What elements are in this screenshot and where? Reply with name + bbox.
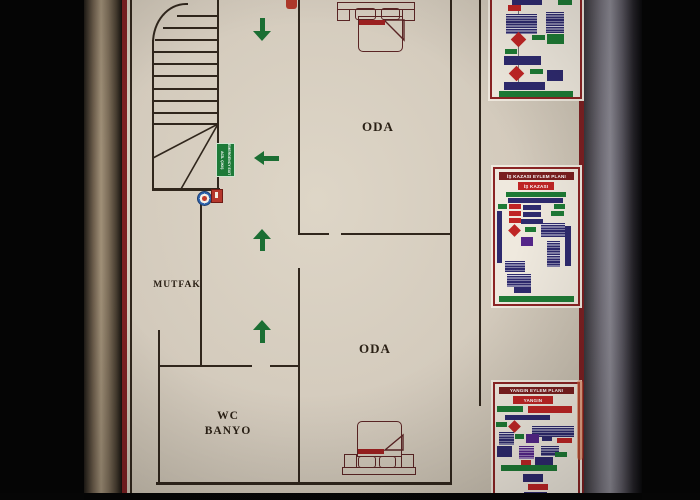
photo-of-evacuation-board: ACİL ÇIKIŞ EMERGENCY EXIT ODA ODA MUTFAK… <box>0 0 700 500</box>
flowchart-node <box>499 296 574 302</box>
flowchart-node <box>557 438 572 443</box>
bed-blanket <box>359 20 385 25</box>
poster-subtitle: YANGIN <box>513 396 553 404</box>
flowchart-node <box>517 444 535 460</box>
bed-nightstand <box>401 454 414 468</box>
radiator-marker-icon <box>286 0 297 9</box>
board-frame-right <box>584 0 642 500</box>
flowchart-node <box>501 465 557 471</box>
flowchart-node <box>509 218 521 223</box>
bed-blanket <box>358 449 384 454</box>
evacuation-board: ACİL ÇIKIŞ EMERGENCY EXIT ODA ODA MUTFAK… <box>122 0 584 500</box>
flowchart-node <box>532 35 545 40</box>
flowchart-node <box>505 272 532 288</box>
arrow-up-icon <box>253 229 271 239</box>
flowchart-node <box>528 484 548 490</box>
flowchart-node <box>542 436 552 441</box>
flowchart-node <box>497 430 515 446</box>
action-plan-poster-top <box>490 0 582 99</box>
room-label-oda-bottom: ODA <box>337 341 413 357</box>
poster-title: YANGIN EYLEM PLANI <box>499 387 574 394</box>
flowchart-node <box>497 446 512 457</box>
bed-nightstand <box>402 9 415 21</box>
flowchart-node <box>558 0 572 5</box>
flowchart-node <box>505 49 517 54</box>
flowchart-node <box>526 434 539 443</box>
emergency-exit-sign: ACİL ÇIKIŞ EMERGENCY EXIT <box>216 143 235 177</box>
work-accident-action-plan-poster: İŞ KAZASI EYLEM PLANI İŞ KAZASI <box>493 167 580 306</box>
flowchart-node <box>498 204 507 209</box>
flowchart-node <box>555 452 567 457</box>
flowchart-node <box>528 406 572 413</box>
fire-action-plan-poster: YANGIN EYLEM PLANI YANGIN <box>493 382 580 500</box>
board-frame-left <box>84 0 122 500</box>
flowchart-node <box>565 226 571 266</box>
flowchart-node <box>515 434 524 439</box>
arrow-left-icon <box>264 156 279 161</box>
flowchart-node <box>523 212 541 217</box>
flowchart-decision <box>508 224 521 237</box>
bed-footboard <box>342 467 416 475</box>
flowchart-node <box>525 227 536 232</box>
bed-nightstand <box>344 454 357 468</box>
flowchart-node <box>497 211 502 263</box>
light-reflection <box>577 380 583 460</box>
wc-label-line2: BANYO <box>188 424 268 439</box>
flowchart-node <box>503 259 526 273</box>
flowchart-node <box>506 192 566 197</box>
wc-label-line1: WC <box>188 409 268 424</box>
flowchart-node <box>539 221 566 238</box>
flowchart-node <box>508 5 521 11</box>
arrow-up-icon <box>260 239 265 251</box>
room-label-mutfak: MUTFAK <box>146 280 208 290</box>
flowchart-node <box>509 204 521 209</box>
flowchart-node <box>544 10 565 34</box>
arrow-down-icon <box>260 18 265 31</box>
flowchart-node <box>508 198 563 203</box>
room-label-wc-banyo: WC BANYO <box>188 409 268 439</box>
flowchart-node <box>514 287 531 293</box>
flowchart-node <box>496 422 507 427</box>
floor-plan-poster: ACİL ÇIKIŞ EMERGENCY EXIT ODA ODA MUTFAK… <box>127 0 579 500</box>
flowchart-node <box>504 82 545 90</box>
flowchart-node <box>505 415 550 420</box>
poster-title: İŞ KAZASI EYLEM PLANI <box>499 172 574 180</box>
flowchart-node <box>504 56 541 65</box>
photo-bottom-edge <box>0 493 700 500</box>
flowchart-node <box>497 406 523 412</box>
flowchart-decision <box>509 66 525 82</box>
arrow-left-icon <box>254 151 264 165</box>
arrow-up-icon <box>253 320 271 330</box>
arrow-down-icon <box>253 31 271 41</box>
flowchart-node <box>547 70 563 81</box>
exit-sign-text: ACİL ÇIKIŞ <box>220 151 224 169</box>
flowchart-node <box>551 211 564 216</box>
flowchart-node <box>530 69 543 74</box>
exit-sign-text-2: EMERGENCY EXIT <box>227 144 231 175</box>
flowchart-node <box>523 205 541 210</box>
poster-subtitle: İŞ KAZASI <box>518 182 554 190</box>
flowchart-node <box>545 239 561 268</box>
assembly-point-icon <box>197 191 212 206</box>
flowchart-node <box>547 34 564 44</box>
bed-nightstand <box>337 9 350 21</box>
arrow-up-icon <box>260 330 265 343</box>
flowchart-node <box>521 237 533 246</box>
flowchart-node <box>509 211 521 216</box>
flowchart-node <box>554 204 565 209</box>
fire-extinguisher-icon <box>211 189 223 203</box>
flowchart-node <box>499 91 573 97</box>
flowchart-node <box>523 474 543 482</box>
room-label-oda-top: ODA <box>340 119 416 135</box>
flowchart-node <box>504 12 538 35</box>
